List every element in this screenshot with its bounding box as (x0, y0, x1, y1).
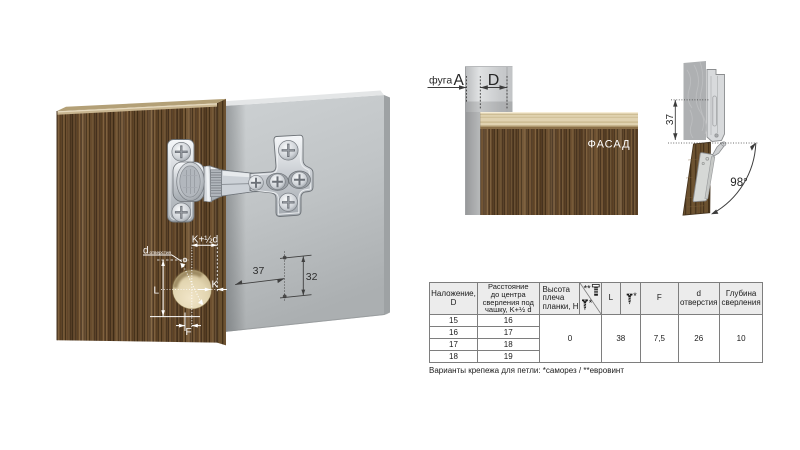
svg-text:F: F (185, 327, 191, 338)
svg-text:L: L (154, 286, 160, 297)
svg-text:*: * (633, 291, 637, 301)
svg-text:**: ** (583, 284, 591, 294)
svg-text:отверстия: отверстия (150, 250, 172, 255)
svg-text:K+½d: K+½d (192, 235, 218, 246)
svg-text:98°: 98° (730, 177, 747, 189)
svg-text:32: 32 (306, 271, 318, 283)
svg-text:37: 37 (253, 265, 265, 277)
svg-text:D: D (488, 72, 500, 89)
svg-text:K: K (212, 280, 219, 291)
svg-text:*: * (588, 298, 592, 308)
svg-text:37: 37 (665, 114, 676, 126)
svg-text:ФАСАД: ФАСАД (587, 139, 630, 151)
svg-text:фуга: фуга (429, 75, 452, 87)
